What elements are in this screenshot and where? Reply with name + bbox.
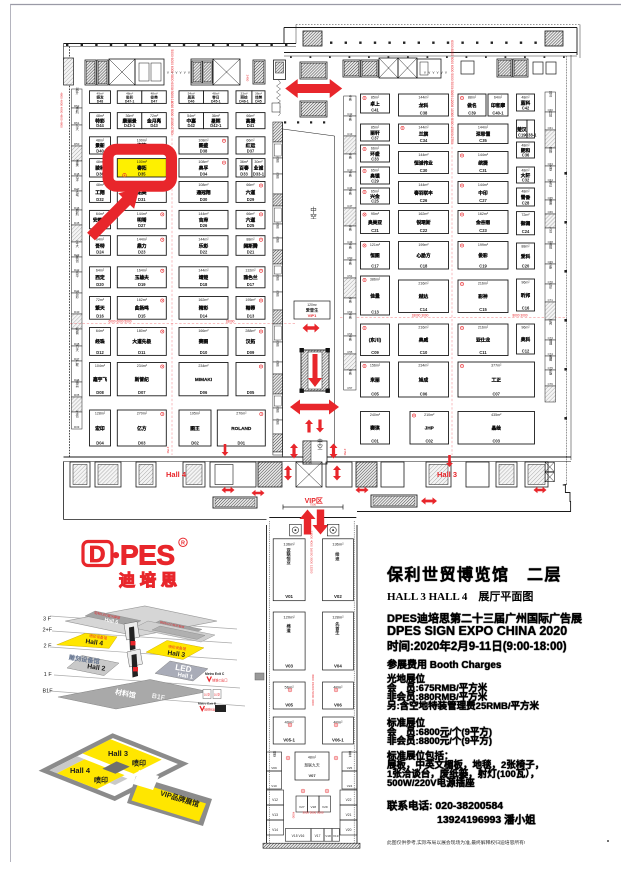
svg-text:1 F: 1 F [44, 672, 53, 678]
svg-text:Hall 3: Hall 3 [167, 650, 186, 659]
svg-text:Y: Y [184, 71, 187, 75]
svg-text:D34: D34 [200, 171, 208, 176]
svg-text:234m²: 234m² [137, 364, 148, 368]
svg-text:Hall 3: Hall 3 [437, 470, 457, 479]
svg-text:2+F: 2+F [43, 627, 53, 633]
svg-text:公交: 公交 [214, 692, 220, 697]
svg-text:D40: D40 [96, 148, 104, 153]
svg-text:力天: 力天 [74, 344, 78, 352]
svg-text:雅色兰: 雅色兰 [243, 274, 257, 281]
svg-text:199m²: 199m² [418, 243, 429, 247]
svg-text:Y: Y [188, 71, 191, 75]
svg-text:中印: 中印 [478, 189, 488, 196]
svg-text:中希: 中希 [348, 242, 352, 250]
svg-text:195m²: 195m² [190, 412, 201, 416]
svg-text:D38: D38 [200, 148, 208, 153]
svg-text:D20: D20 [96, 282, 104, 287]
svg-text:春羽联丰: 春羽联丰 [414, 189, 433, 196]
svg-text:建清: 建清 [548, 90, 552, 98]
svg-text:大洋: 大洋 [74, 174, 78, 182]
svg-text:64m²: 64m² [494, 96, 503, 100]
svg-text:216m²: 216m² [478, 326, 489, 330]
svg-text:亚仕龙: 亚仕龙 [476, 337, 490, 344]
svg-text:V03: V03 [285, 664, 293, 669]
svg-text:D47-1: D47-1 [125, 99, 135, 103]
svg-text:8000 3000: 8000 3000 [512, 313, 527, 317]
svg-text:繁天: 繁天 [94, 305, 105, 312]
svg-text:435m²: 435m² [491, 413, 502, 417]
svg-text:亿方: 亿方 [137, 425, 147, 432]
svg-text:128m²: 128m² [95, 412, 106, 416]
svg-text:C39: C39 [468, 110, 476, 115]
svg-text:禅意: 禅意 [272, 750, 276, 758]
svg-text:C19: C19 [479, 263, 487, 268]
svg-text:D42-1: D42-1 [210, 123, 222, 128]
svg-text:36m²: 36m² [240, 160, 249, 164]
svg-text:13000 4000 16000 3000 15200: 13000 4000 16000 3000 15200 [309, 530, 313, 573]
svg-text:72m²: 72m² [96, 298, 105, 302]
svg-text:赛格: 赛格 [548, 146, 552, 154]
svg-text:汉拓: 汉拓 [246, 338, 256, 345]
svg-text:C29: C29 [371, 178, 379, 183]
svg-text:鼎力: 鼎力 [137, 242, 147, 249]
svg-text:(东川): (东川) [369, 337, 382, 344]
svg-text:48m²: 48m² [521, 96, 530, 100]
svg-text:162m²: 162m² [198, 298, 209, 302]
svg-text:128m²: 128m² [332, 615, 344, 620]
svg-text:85m²: 85m² [371, 126, 380, 130]
svg-text:C11: C11 [479, 350, 487, 355]
svg-text:联创: 联创 [74, 255, 78, 263]
svg-text:D23: D23 [138, 250, 146, 255]
svg-text:连廊: 连廊 [276, 222, 280, 229]
svg-text:V15 V16: V15 V16 [292, 834, 305, 838]
svg-text:C41: C41 [371, 107, 379, 112]
svg-text:164m²: 164m² [137, 268, 148, 272]
svg-text:C16: C16 [522, 305, 530, 310]
svg-text:D05: D05 [247, 390, 255, 395]
svg-text:D43: D43 [150, 123, 158, 128]
svg-text:5000 6000 6000 5800 6000 5000: 5000 6000 6000 5800 6000 5000 18000 5000… [170, 49, 174, 134]
svg-text:光华: 光华 [74, 270, 78, 278]
svg-text:亿彩: 亿彩 [74, 291, 78, 299]
svg-text:C21: C21 [371, 228, 379, 233]
svg-text:C09: C09 [371, 350, 379, 355]
svg-text:V20: V20 [346, 828, 352, 832]
svg-text:V09: V09 [271, 766, 277, 770]
svg-text:锐珺斯: 锐珺斯 [416, 219, 430, 226]
svg-text:D16: D16 [96, 314, 104, 319]
svg-text:65m²: 65m² [371, 169, 380, 173]
svg-text:C06: C06 [420, 391, 428, 396]
svg-text:96m²: 96m² [521, 281, 530, 285]
svg-text:D46: D46 [188, 99, 194, 103]
svg-text:亚联恒业: 亚联恒业 [286, 546, 292, 566]
svg-text:195m²: 195m² [245, 298, 256, 302]
svg-text:金谷雨: 金谷雨 [475, 219, 490, 226]
svg-text:奥科: 奥科 [521, 336, 531, 343]
svg-text:132m²: 132m² [245, 268, 256, 272]
svg-text:216m²: 216m² [418, 326, 429, 330]
svg-text:心励方: 心励方 [416, 252, 430, 259]
svg-text:C03: C03 [492, 438, 500, 443]
svg-text:C34: C34 [420, 138, 428, 143]
svg-text:精彩: 精彩 [199, 305, 209, 312]
svg-text:144m²: 144m² [478, 153, 489, 157]
svg-text:D21: D21 [247, 250, 255, 255]
svg-text:D26: D26 [200, 223, 208, 228]
svg-text:喷印: 喷印 [94, 776, 108, 785]
svg-text:V28: V28 [311, 805, 317, 809]
svg-text:C02: C02 [425, 438, 433, 443]
svg-text:V02: V02 [334, 594, 342, 599]
svg-text:C23: C23 [479, 228, 487, 233]
svg-text:48m²: 48m² [308, 756, 317, 760]
svg-text:美嘉: 美嘉 [548, 198, 552, 206]
svg-text:D06: D06 [200, 390, 208, 395]
svg-text:C37: C37 [371, 135, 379, 140]
svg-text:166m²: 166m² [198, 329, 209, 333]
svg-text:3000 5000 3000: 3000 5000 3000 [303, 811, 324, 815]
svg-text:377m²: 377m² [491, 364, 502, 368]
svg-text:V19: V19 [333, 834, 339, 838]
svg-text:恒诚伟业: 恒诚伟业 [414, 159, 433, 166]
svg-text:C31: C31 [479, 168, 487, 173]
svg-text:64m²: 64m² [96, 212, 105, 216]
svg-text:MIMAKI: MIMAKI [195, 377, 212, 382]
svg-text:V29: V29 [322, 805, 328, 809]
svg-text:C38-1: C38-1 [525, 132, 537, 137]
svg-text:深思懂: 深思懂 [476, 131, 490, 138]
svg-text:C40-1: C40-1 [492, 110, 504, 115]
svg-text:C28: C28 [522, 200, 530, 205]
svg-text:C24: C24 [522, 229, 530, 234]
svg-text:V18: V18 [325, 834, 331, 838]
svg-text:3 F: 3 F [43, 617, 52, 623]
svg-text:旭成: 旭成 [418, 376, 429, 383]
svg-text:C30: C30 [420, 168, 428, 173]
svg-text:D13: D13 [247, 314, 255, 319]
svg-text:天域: 天域 [74, 190, 78, 197]
svg-text:正大: 正大 [74, 241, 78, 248]
svg-text:D03: D03 [138, 440, 146, 445]
svg-text:2 F: 2 F [44, 643, 53, 649]
svg-text:中希: 中希 [348, 258, 352, 266]
svg-text:2750: 2750 [343, 449, 347, 456]
svg-text:恒通: 恒通 [548, 338, 552, 346]
svg-text:D24: D24 [96, 250, 104, 255]
svg-text:中希: 中希 [348, 334, 352, 342]
svg-text:晨升: 晨升 [74, 87, 78, 95]
svg-text:迪培思: 迪培思 [119, 571, 182, 590]
svg-text:恒图: 恒图 [370, 252, 380, 259]
svg-text:D47: D47 [151, 99, 157, 103]
svg-text:7500: 7500 [310, 503, 317, 507]
svg-text:兰旗: 兰旗 [419, 131, 429, 138]
svg-text:V06-1: V06-1 [332, 738, 344, 743]
svg-text:162m²: 162m² [418, 212, 429, 216]
svg-text:D43-1: D43-1 [124, 123, 136, 128]
svg-text:D35: D35 [138, 171, 146, 176]
svg-text:印客摩: 印客摩 [491, 102, 505, 109]
svg-text:D42: D42 [187, 123, 195, 128]
svg-text:吾特: 吾特 [95, 242, 105, 249]
svg-text:公交: 公交 [204, 692, 210, 697]
svg-text:卓上: 卓上 [370, 100, 380, 107]
svg-text:Metro Exit B: Metro Exit B [198, 702, 217, 706]
svg-text:D15: D15 [138, 314, 146, 319]
svg-text:D45: D45 [74, 221, 80, 225]
svg-text:华臣: 华臣 [548, 262, 552, 269]
svg-text:D30: D30 [200, 197, 208, 202]
svg-text:C42: C42 [522, 105, 530, 110]
svg-text:V22: V22 [346, 798, 352, 802]
svg-text:Y: Y [179, 71, 182, 75]
svg-text:中希: 中希 [348, 312, 352, 320]
svg-text:彩神: 彩神 [477, 293, 488, 300]
svg-text:正邦: 正邦 [548, 319, 552, 326]
svg-text:162m²: 162m² [137, 298, 148, 302]
svg-text:199m²: 199m² [478, 243, 489, 247]
svg-text:C26: C26 [420, 198, 428, 203]
svg-text:85m²: 85m² [371, 96, 380, 100]
svg-text:斯普纪: 斯普纪 [135, 376, 149, 383]
svg-text:4800 4800 4800 4800 4800: 4800 4800 4800 4800 4800 [60, 92, 64, 128]
svg-text:赛琪: 赛琪 [369, 425, 380, 432]
svg-text:JHP: JHP [425, 426, 434, 431]
svg-text:C38: C38 [420, 110, 428, 115]
svg-text:D22: D22 [200, 250, 208, 255]
svg-text:D41: D41 [247, 123, 255, 128]
svg-text:288m²: 288m² [245, 329, 256, 333]
svg-text:Y: Y [432, 71, 435, 75]
svg-text:C27: C27 [479, 198, 487, 203]
svg-text:鑫旺: 鑫旺 [548, 242, 552, 249]
svg-text:华信: 华信 [74, 410, 78, 418]
svg-text:D33: D33 [240, 171, 248, 176]
svg-text:D01: D01 [238, 440, 246, 445]
svg-text:中希: 中希 [348, 224, 352, 232]
svg-text:宏印: 宏印 [95, 425, 105, 432]
svg-text:C25: C25 [371, 198, 379, 203]
svg-text:D: D [89, 541, 106, 567]
svg-text:64m²: 64m² [96, 268, 105, 272]
svg-text:104m²: 104m² [95, 364, 106, 368]
svg-text:俊彩: 俊彩 [478, 252, 488, 259]
svg-text:234m²: 234m² [418, 364, 429, 368]
svg-text:中希: 中希 [348, 368, 352, 376]
svg-text:64m²: 64m² [96, 329, 105, 333]
svg-text:连廊: 连廊 [276, 274, 280, 281]
svg-text:108m²: 108m² [198, 183, 209, 187]
svg-text:88m²: 88m² [521, 245, 530, 249]
svg-text:88m²: 88m² [468, 96, 477, 100]
svg-text:力高: 力高 [548, 226, 552, 234]
svg-text:C22: C22 [420, 228, 428, 233]
svg-text:V05: V05 [285, 703, 293, 708]
svg-text:越达: 越达 [418, 293, 429, 300]
svg-text:C57: C57 [347, 386, 353, 390]
svg-text:连廊: 连廊 [276, 172, 280, 179]
svg-text:伟航: 伟航 [74, 106, 78, 114]
svg-text:佳量: 佳量 [370, 292, 380, 299]
svg-text:D11: D11 [138, 350, 146, 355]
svg-text:C35: C35 [479, 138, 487, 143]
svg-text:V12: V12 [272, 798, 278, 802]
svg-text:56m²: 56m² [285, 685, 295, 690]
svg-text:V13: V13 [272, 813, 278, 817]
svg-text:V14: V14 [272, 828, 278, 832]
svg-text:R: R [181, 541, 185, 547]
svg-text:D35: D35 [74, 393, 80, 397]
svg-text:C18: C18 [420, 263, 428, 268]
svg-text:奥美亚: 奥美亚 [368, 219, 382, 226]
svg-text:亚竞: 亚竞 [348, 751, 352, 758]
svg-text:连廊: 连廊 [276, 156, 280, 163]
svg-text:慧联九天: 慧联九天 [304, 763, 320, 768]
svg-text:V01: V01 [285, 594, 293, 599]
svg-text:C13: C13 [347, 132, 353, 136]
svg-text:D02: D02 [191, 440, 199, 445]
svg-text:D17: D17 [247, 282, 255, 287]
svg-text:88m²: 88m² [246, 237, 255, 241]
svg-text:210m²: 210m² [424, 413, 435, 417]
svg-text:4000: 4000 [292, 812, 296, 819]
svg-text:144m²: 144m² [478, 126, 489, 130]
svg-text:C33: C33 [371, 156, 379, 161]
svg-text:144m²: 144m² [418, 183, 429, 187]
svg-text:C51: C51 [347, 274, 353, 278]
svg-text:连廊: 连廊 [276, 406, 280, 413]
svg-text:D46-1: D46-1 [239, 99, 249, 103]
svg-text:144m²: 144m² [137, 237, 148, 241]
svg-text:D25: D25 [247, 223, 255, 228]
svg-text:V10: V10 [271, 784, 277, 788]
svg-text:95m²: 95m² [371, 212, 380, 216]
svg-text:270m²: 270m² [137, 412, 148, 416]
svg-text:V05-1: V05-1 [283, 738, 295, 743]
svg-text:乐彩: 乐彩 [199, 242, 209, 249]
svg-text:18000: 18000 [226, 319, 235, 323]
svg-text:C36: C36 [522, 152, 530, 157]
svg-text:66m²: 66m² [246, 138, 255, 142]
svg-text:中希: 中希 [348, 94, 352, 102]
svg-text:德高: 德高 [74, 380, 78, 388]
svg-text:D19: D19 [138, 282, 146, 287]
svg-text:D33-1: D33-1 [253, 171, 265, 176]
svg-text:72m²: 72m² [521, 213, 530, 217]
svg-text:昕邦: 昕邦 [521, 292, 531, 299]
svg-text:经珠: 经珠 [95, 338, 105, 345]
svg-text:Y: Y [436, 71, 439, 75]
svg-text:C76: C76 [548, 382, 554, 386]
svg-text:做名: 做名 [466, 102, 477, 109]
svg-text:九天: 九天 [74, 123, 78, 131]
svg-text:奥威: 奥威 [419, 337, 429, 344]
svg-text:D48: D48 [97, 99, 103, 103]
svg-text:V17: V17 [315, 834, 321, 838]
svg-text:Metro Exit C: Metro Exit C [205, 672, 225, 676]
svg-text:Y: Y [175, 71, 178, 75]
svg-text:连廊: 连廊 [276, 236, 280, 243]
svg-text:D18: D18 [200, 282, 208, 287]
svg-text:中希: 中希 [348, 188, 352, 196]
svg-text:中空: 中空 [316, 437, 323, 450]
svg-text:图王: 图王 [190, 425, 200, 432]
svg-text:108m²: 108m² [198, 160, 209, 164]
svg-text:优印: 优印 [548, 282, 552, 290]
svg-text:D07: D07 [138, 390, 146, 395]
svg-text:C32: C32 [522, 177, 530, 182]
svg-text:136m²: 136m² [332, 541, 344, 546]
svg-text:6000 8000 9000 6000 5000 5000: 6000 8000 9000 6000 5000 5000 3000 12000… [450, 40, 454, 144]
svg-text:拓普: 拓普 [74, 327, 78, 335]
svg-text:D31: D31 [138, 197, 146, 202]
svg-text:Hall 3: Hall 3 [108, 749, 128, 758]
svg-text:V25: V25 [347, 766, 353, 770]
svg-text:绘迪: 绘迪 [334, 551, 340, 562]
svg-text:162m²: 162m² [478, 212, 489, 216]
svg-text:D04: D04 [96, 440, 104, 445]
svg-text:144m²: 144m² [418, 126, 429, 130]
svg-text:120m²: 120m² [283, 615, 295, 620]
svg-text:C20: C20 [522, 263, 530, 268]
svg-text:赛图: 赛图 [198, 338, 209, 345]
svg-text:西定: 西定 [95, 274, 105, 281]
svg-text:V06: V06 [334, 703, 342, 708]
svg-text:D50: D50 [74, 142, 80, 146]
svg-text:D44: D44 [96, 123, 104, 128]
svg-text:180m²: 180m² [137, 329, 148, 333]
svg-text:C47: C47 [347, 204, 353, 208]
svg-text:V21: V21 [346, 813, 352, 817]
svg-text:100m²: 100m² [137, 138, 148, 142]
svg-text:中希: 中希 [348, 114, 352, 122]
svg-text:D37: D37 [247, 148, 255, 153]
svg-text:66m²: 66m² [246, 212, 255, 216]
svg-text:启航: 启航 [74, 208, 78, 216]
svg-text:V07: V07 [308, 773, 316, 778]
svg-text:144m²: 144m² [198, 237, 209, 241]
svg-text:C15: C15 [479, 307, 487, 312]
svg-text:120m²: 120m² [307, 303, 317, 307]
svg-text:喷印: 喷印 [132, 759, 146, 768]
svg-text:D45-1: D45-1 [211, 99, 221, 103]
svg-text:30m²: 30m² [254, 160, 263, 164]
svg-text:棉道: 棉道 [286, 623, 292, 634]
svg-text:天意: 天意 [548, 165, 552, 172]
svg-text:晶绘: 晶绘 [492, 425, 502, 432]
svg-text:工翔: 工翔 [95, 189, 105, 196]
svg-text:宏达: 宏达 [548, 180, 552, 188]
svg-text:Y: Y [428, 71, 431, 75]
svg-text:108m²: 108m² [198, 138, 209, 142]
svg-text:爱科: 爱科 [521, 253, 531, 260]
svg-text:ROLAND: ROLAND [231, 426, 252, 431]
svg-text:C01: C01 [371, 438, 379, 443]
svg-text:雅图: 雅图 [548, 354, 552, 362]
svg-text:御澜: 御澜 [520, 220, 531, 227]
svg-text:龙科: 龙科 [418, 102, 429, 109]
svg-text:科技: 科技 [548, 110, 552, 118]
svg-text:156m²: 156m² [370, 364, 381, 368]
svg-text:270m²: 270m² [236, 412, 247, 416]
svg-text:144m²: 144m² [137, 212, 148, 216]
svg-text:2450: 2450 [246, 75, 250, 82]
svg-text:大道先极: 大道先极 [132, 338, 151, 345]
svg-text:144m²: 144m² [198, 268, 209, 272]
svg-text:121m²: 121m² [370, 243, 381, 247]
